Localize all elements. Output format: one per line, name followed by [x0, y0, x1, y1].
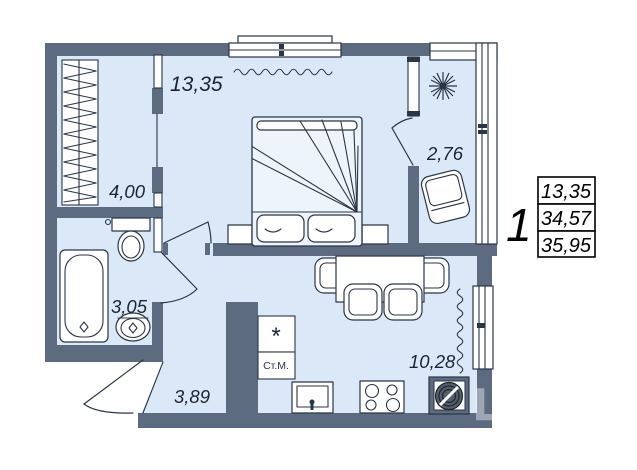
bedroom-window	[229, 36, 341, 57]
entry-door-arc	[84, 404, 133, 413]
bathtub-icon	[60, 250, 108, 342]
rooms-count: 1	[506, 199, 532, 251]
pillow	[308, 215, 355, 242]
apartment-area-value: 34,57	[541, 208, 592, 230]
kitchen-sink-icon	[292, 382, 333, 413]
bedroom-area-label: 13,35	[170, 73, 223, 96]
bed	[252, 117, 362, 246]
total-area-value: 35,95	[541, 235, 592, 257]
watermark: ЦИАН	[472, 380, 637, 431]
balcony-partition-window	[407, 57, 420, 116]
round-sink-icon	[429, 377, 469, 414]
kitchen-window	[473, 286, 493, 369]
hallway-area-label: 3,89	[174, 386, 210, 407]
bathroom-area-label: 3,05	[111, 296, 148, 317]
washing-machine-label: Ст.М.	[263, 360, 289, 372]
closet-hatching	[62, 60, 98, 205]
floorplan-canvas: 13,35 4,00 2,76 3,05 3,89 10,28 * Ст.М. …	[0, 0, 637, 470]
pillow	[257, 215, 304, 242]
wardrobe-area-label: 4,00	[109, 181, 146, 202]
door-jamb	[163, 243, 168, 255]
stove-icon	[360, 381, 404, 413]
kitchen-area-label: 10,28	[409, 351, 456, 372]
plant-icon	[429, 72, 457, 100]
entry-door-leaf	[84, 360, 143, 404]
bathroom-sink-icon	[116, 313, 150, 341]
door-jamb	[205, 243, 210, 255]
summary-table: 1 13,35 34,57 35,95	[506, 177, 595, 257]
balcony-area-label: 2,76	[426, 143, 464, 164]
floorplan-drawing: 13,35 4,00 2,76 3,05 3,89 10,28 * Ст.М. …	[0, 0, 637, 470]
vent-box-label: *	[271, 323, 280, 350]
living-area-value: 13,35	[541, 181, 592, 203]
